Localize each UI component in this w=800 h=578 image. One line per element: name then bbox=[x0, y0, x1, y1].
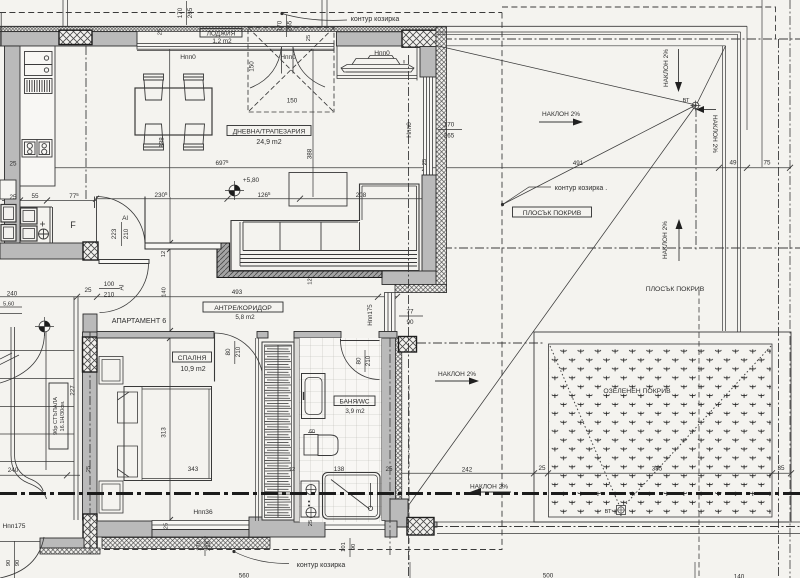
svg-text:25: 25 bbox=[9, 161, 17, 168]
svg-text:контур козирка .: контур козирка . bbox=[555, 185, 607, 192]
svg-text:80: 80 bbox=[225, 348, 232, 356]
svg-text:АНТРЕ/КОРИДОР: АНТРЕ/КОРИДОР bbox=[214, 305, 272, 312]
svg-text:25: 25 bbox=[538, 465, 546, 472]
svg-text:ЛОДЖИЯ: ЛОДЖИЯ bbox=[207, 31, 236, 38]
svg-text:223: 223 bbox=[111, 228, 118, 239]
svg-text:170: 170 bbox=[197, 541, 203, 551]
svg-text:77: 77 bbox=[406, 309, 414, 316]
svg-text:12: 12 bbox=[308, 278, 314, 284]
svg-text:Hпп36: Hпп36 bbox=[193, 509, 213, 516]
svg-text:F: F bbox=[70, 220, 76, 230]
svg-text:Hпп175: Hпп175 bbox=[3, 523, 26, 530]
svg-text:210: 210 bbox=[104, 292, 115, 299]
svg-text:385: 385 bbox=[652, 466, 663, 473]
svg-text:25: 25 bbox=[164, 523, 170, 529]
svg-text:ПЛОСЪК ПОКРИВ: ПЛОСЪК ПОКРИВ bbox=[646, 286, 705, 293]
svg-text:НАКЛОН 2%: НАКЛОН 2% bbox=[711, 115, 718, 153]
svg-text:240: 240 bbox=[7, 291, 18, 298]
svg-text:493: 493 bbox=[232, 289, 243, 296]
svg-text:БАНЯ/WC: БАНЯ/WC bbox=[340, 399, 370, 406]
svg-text:265: 265 bbox=[444, 133, 455, 140]
svg-text:16.1Н/30см.: 16.1Н/30см. bbox=[60, 400, 66, 431]
svg-text:25: 25 bbox=[158, 29, 164, 35]
svg-text:265: 265 bbox=[287, 20, 294, 31]
svg-text:313: 313 bbox=[161, 427, 168, 438]
svg-text:560: 560 bbox=[239, 573, 250, 578]
svg-text:75: 75 bbox=[763, 160, 771, 167]
svg-text:1,2 m2: 1,2 m2 bbox=[212, 38, 232, 45]
svg-text:НАКЛОН 2%: НАКЛОН 2% bbox=[663, 49, 670, 87]
svg-text:150: 150 bbox=[249, 61, 256, 72]
svg-text:24,9 m2: 24,9 m2 bbox=[256, 139, 281, 146]
svg-text:343: 343 bbox=[188, 466, 199, 473]
svg-text:25: 25 bbox=[306, 35, 312, 41]
svg-text:80: 80 bbox=[356, 357, 363, 365]
svg-text:55: 55 bbox=[31, 193, 39, 200]
svg-text:3,9 m2: 3,9 m2 bbox=[345, 408, 365, 415]
svg-text:Hпп0: Hпп0 bbox=[406, 122, 413, 138]
svg-text:НАКЛОН 2%: НАКЛОН 2% bbox=[542, 111, 580, 118]
svg-text:25: 25 bbox=[385, 466, 393, 473]
svg-text:ОЗЕЛЕНЕН ПОКРИВ: ОЗЕЛЕНЕН ПОКРИВ bbox=[603, 388, 671, 395]
svg-text:242: 242 bbox=[462, 467, 473, 474]
svg-text:ПЛОСЪК ПОКРИВ: ПЛОСЪК ПОКРИВ bbox=[523, 210, 582, 217]
svg-text:СПАЛНЯ: СПАЛНЯ bbox=[178, 355, 207, 362]
svg-text:+5,80: +5,80 bbox=[243, 177, 260, 184]
svg-text:100: 100 bbox=[104, 281, 115, 288]
svg-text:Al: Al bbox=[122, 215, 128, 222]
svg-text:10,9 m2: 10,9 m2 bbox=[180, 366, 205, 373]
svg-text:388: 388 bbox=[307, 148, 314, 159]
svg-text:НАКЛОН 2%: НАКЛОН 2% bbox=[438, 371, 476, 378]
svg-text:90: 90 bbox=[406, 319, 414, 326]
svg-text:35: 35 bbox=[777, 465, 785, 472]
svg-text:170: 170 bbox=[177, 7, 184, 18]
svg-text:500: 500 bbox=[543, 573, 554, 578]
svg-text:Hпп0: Hпп0 bbox=[180, 54, 196, 61]
svg-text:49: 49 bbox=[729, 160, 737, 167]
svg-text:АПАРТАМЕНТ 6: АПАРТАМЕНТ 6 bbox=[112, 316, 166, 325]
svg-text:227: 227 bbox=[70, 385, 77, 396]
svg-text:150: 150 bbox=[287, 98, 298, 105]
svg-text:491: 491 bbox=[573, 160, 584, 167]
svg-text:контур козирка: контур козирка bbox=[297, 562, 346, 569]
svg-text:101: 101 bbox=[341, 542, 347, 552]
svg-text:140: 140 bbox=[734, 574, 745, 578]
svg-text:Hпп175: Hпп175 bbox=[367, 304, 374, 326]
svg-text:ВТ: ВТ bbox=[605, 509, 612, 515]
svg-text:25: 25 bbox=[422, 159, 428, 165]
svg-text:138: 138 bbox=[334, 466, 345, 473]
svg-text:Hпп0: Hпп0 bbox=[374, 50, 390, 57]
svg-text:208: 208 bbox=[356, 192, 367, 199]
svg-text:25: 25 bbox=[84, 287, 92, 294]
svg-text:25: 25 bbox=[9, 194, 17, 201]
svg-text:Hпп0: Hпп0 bbox=[280, 54, 296, 61]
svg-text:НАКЛОН 2%: НАКЛОН 2% bbox=[470, 484, 508, 491]
svg-text:338: 338 bbox=[159, 137, 166, 148]
svg-text:12: 12 bbox=[161, 251, 167, 257]
svg-text:210: 210 bbox=[123, 228, 130, 239]
svg-text:240: 240 bbox=[8, 467, 19, 474]
svg-text:12: 12 bbox=[289, 467, 295, 473]
svg-text:9бр СТЪПАЛА: 9бр СТЪПАЛА bbox=[53, 397, 59, 435]
svg-text:ВТ: ВТ bbox=[683, 98, 690, 104]
svg-text:5,8 m2: 5,8 m2 bbox=[235, 314, 255, 321]
svg-text:170: 170 bbox=[444, 122, 455, 129]
svg-text:140: 140 bbox=[162, 287, 168, 297]
svg-text:229: 229 bbox=[206, 541, 212, 551]
svg-text:ДНЕВНА/ТРАПЕЗАРИЯ: ДНЕВНА/ТРАПЕЗАРИЯ bbox=[233, 129, 306, 136]
svg-text:Al: Al bbox=[119, 284, 126, 290]
svg-text:210: 210 bbox=[235, 346, 242, 357]
svg-text:25: 25 bbox=[308, 520, 314, 526]
svg-text:90: 90 bbox=[15, 560, 21, 566]
svg-text:90: 90 bbox=[351, 544, 357, 550]
svg-text:210: 210 bbox=[365, 355, 372, 366]
svg-text:НАКЛОН 2%: НАКЛОН 2% bbox=[662, 221, 669, 259]
svg-text:170: 170 bbox=[277, 20, 284, 31]
svg-text:контур козирка: контур козирка bbox=[351, 16, 400, 23]
svg-text:5,60: 5,60 bbox=[3, 302, 14, 308]
svg-text:265: 265 bbox=[187, 7, 194, 18]
svg-text:90: 90 bbox=[6, 560, 12, 566]
svg-text:25: 25 bbox=[86, 466, 92, 472]
